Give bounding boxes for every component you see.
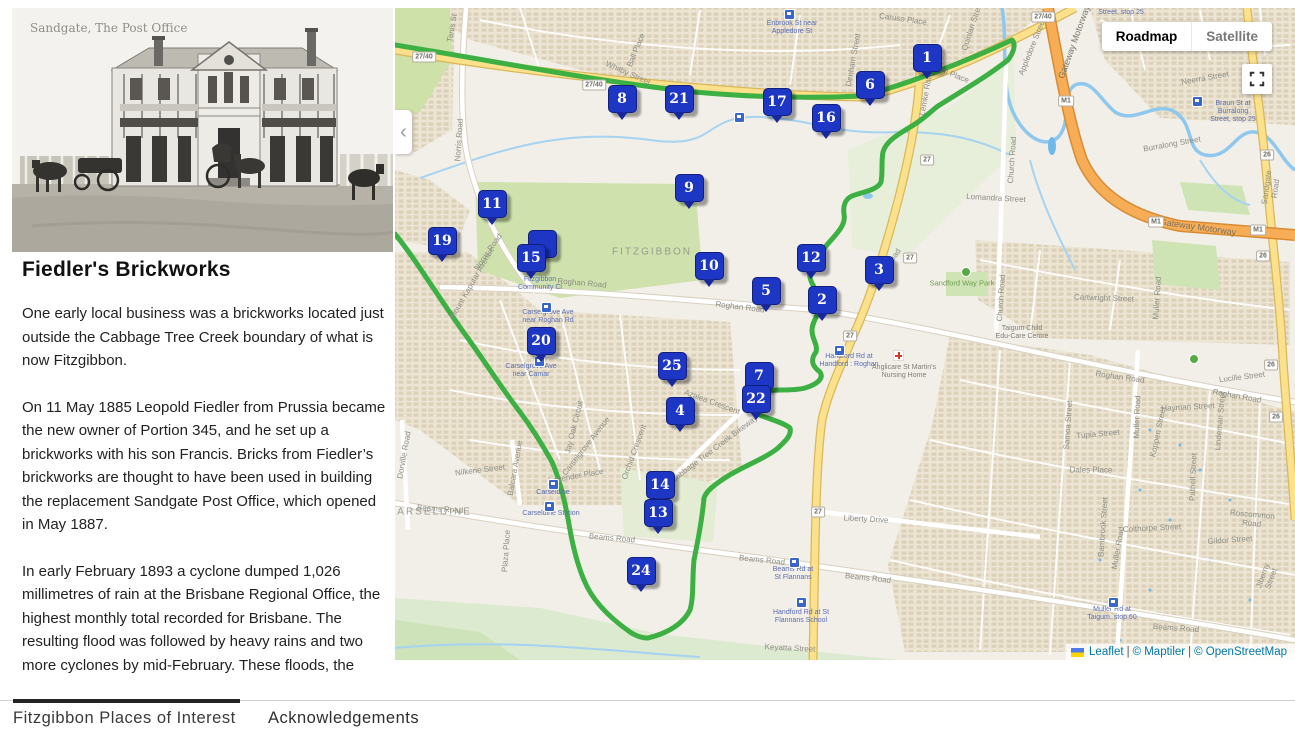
map-marker[interactable]: 6 [856, 71, 885, 99]
map-marker[interactable]: 19 [428, 227, 457, 255]
map-marker[interactable]: 20 [527, 327, 556, 355]
bus-stop-icon [796, 597, 807, 608]
map-marker[interactable]: 22 [742, 385, 771, 413]
route-shield: 26 [1269, 412, 1283, 423]
route-shield: 27/40 [412, 52, 436, 63]
roadmap-button[interactable]: Roadmap [1102, 22, 1192, 51]
osm-link[interactable]: © OpenStreetMap [1194, 646, 1287, 658]
route-shield: 27 [920, 155, 934, 166]
ukraine-flag-icon [1071, 648, 1084, 657]
map-attribution: Leaflet | © Maptiler | © OpenStreetMap [1066, 644, 1295, 660]
sidebar: Sandgate, The Post Office Fiedler's Bric… [0, 0, 395, 700]
attribution-separator: | [1188, 646, 1191, 658]
leaflet-link[interactable]: Leaflet [1089, 646, 1124, 658]
article-paragraph: One early local business was a brickwork… [22, 302, 388, 373]
map-marker[interactable]: 13 [644, 499, 673, 527]
map-marker[interactable]: 15 [517, 244, 546, 272]
route-shield: 26 [1260, 150, 1274, 161]
map-marker[interactable]: 4 [666, 397, 695, 425]
fullscreen-icon [1249, 71, 1265, 87]
bus-stop-icon [834, 345, 845, 356]
map-marker[interactable]: 11 [478, 190, 507, 218]
photo-caption: Sandgate, The Post Office [30, 21, 187, 35]
map-canvas[interactable]: ‹ Roadmap Satellite Leaflet | © Maptiler… [395, 8, 1295, 660]
map-marker[interactable]: 2 [808, 286, 837, 314]
map-marker[interactable]: 9 [675, 174, 704, 202]
route-shield: 26 [1264, 360, 1278, 371]
route-shield: 27/40 [582, 80, 606, 91]
maptiler-link[interactable]: © Maptiler [1133, 646, 1186, 658]
route-shield: M1 [1148, 217, 1164, 228]
park-tree-icon [961, 267, 971, 277]
map-marker[interactable]: 25 [658, 352, 687, 380]
bus-stop-icon [734, 112, 745, 123]
park-tree-icon [1189, 354, 1199, 364]
map-marker[interactable]: 10 [695, 252, 724, 280]
route-shield: M1 [1058, 96, 1074, 107]
route-shield: 27 [843, 331, 857, 342]
bus-stop-icon [541, 302, 552, 313]
bus-stop-icon [548, 479, 559, 490]
map-marker[interactable]: 8 [608, 85, 637, 113]
bus-stop-icon [789, 557, 800, 568]
route-shield: 26 [1256, 251, 1270, 262]
tab-bar: Fitzgibbon Places of Interest Acknowledg… [0, 700, 1295, 732]
fullscreen-button[interactable] [1242, 64, 1272, 94]
article-paragraph: In early February 1893 a cyclone dumped … [22, 560, 388, 678]
map-marker[interactable]: 24 [627, 557, 656, 585]
bus-stop-icon [1192, 96, 1203, 107]
active-tab-underline [13, 699, 240, 703]
map-marker[interactable]: 17 [763, 88, 792, 116]
satellite-button[interactable]: Satellite [1191, 22, 1272, 51]
page: Sandgate, The Post Office Fiedler's Bric… [0, 0, 1295, 732]
map-marker[interactable]: 12 [797, 244, 826, 272]
route-shield: M1 [1250, 225, 1266, 236]
bus-stop-icon [784, 9, 795, 20]
article-paragraph: On 11 May 1885 Leopold Fiedler from Prus… [22, 396, 388, 537]
map-marker[interactable]: 21 [665, 85, 694, 113]
article: Fiedler's Brickworks One early local bus… [22, 258, 388, 700]
page-title: Fiedler's Brickworks [22, 258, 388, 282]
bus-stop-icon [1108, 597, 1119, 608]
historic-photo: Sandgate, The Post Office [12, 8, 393, 252]
map-marker[interactable]: 5 [752, 277, 781, 305]
route-shield: 27 [811, 507, 825, 518]
map-marker[interactable]: 14 [646, 471, 675, 499]
map-marker[interactable]: 3 [865, 256, 894, 284]
map-marker[interactable]: 1 [913, 44, 942, 72]
map-marker[interactable]: 16 [812, 104, 841, 132]
route-shield: 27/40 [1031, 12, 1055, 23]
sidebar-collapse-button[interactable]: ‹ [395, 110, 412, 154]
attribution-separator: | [1127, 646, 1130, 658]
map-type-control: Roadmap Satellite [1102, 22, 1272, 51]
hospital-cross-icon [893, 350, 904, 361]
tab-acknowledgements[interactable]: Acknowledgements [268, 709, 419, 728]
tab-fitzgibbon-places[interactable]: Fitzgibbon Places of Interest [13, 709, 236, 728]
bus-stop-icon [544, 501, 555, 512]
route-shield: 27 [903, 253, 917, 264]
